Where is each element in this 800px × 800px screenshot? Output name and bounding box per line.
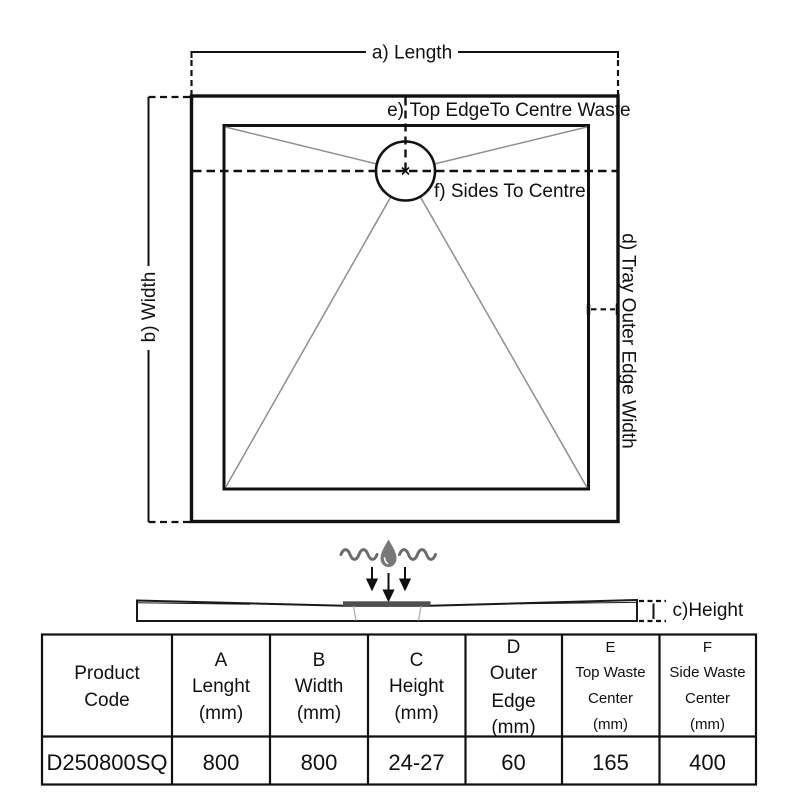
svg-text:Center: Center xyxy=(685,690,730,707)
svg-text:(mm): (mm) xyxy=(297,703,341,724)
svg-text:f) Sides To Centre: f) Sides To Centre xyxy=(434,181,586,202)
svg-text:B: B xyxy=(313,650,326,671)
svg-text:Outer: Outer xyxy=(490,663,538,684)
svg-text:c)Height: c)Height xyxy=(673,600,744,621)
svg-text:D: D xyxy=(507,637,521,658)
svg-text:b) Width: b) Width xyxy=(139,272,160,343)
svg-text:(mm): (mm) xyxy=(690,716,725,733)
svg-text:Edge: Edge xyxy=(491,691,535,712)
svg-text:Code: Code xyxy=(84,690,129,711)
svg-text:24-27: 24-27 xyxy=(388,750,444,775)
svg-text:Top EdgeTo Centre Waste: Top EdgeTo Centre Waste xyxy=(410,100,631,121)
svg-text:Height: Height xyxy=(389,676,445,697)
svg-text:(mm): (mm) xyxy=(199,703,243,724)
svg-text:400: 400 xyxy=(689,750,726,775)
svg-text:800: 800 xyxy=(301,750,338,775)
svg-text:Product: Product xyxy=(74,663,140,684)
svg-text:(mm): (mm) xyxy=(394,703,438,724)
svg-text:A: A xyxy=(215,650,228,671)
svg-text:E: E xyxy=(605,639,615,656)
svg-text:(mm): (mm) xyxy=(491,717,535,738)
svg-text:Center: Center xyxy=(588,690,633,707)
svg-text:Side Waste: Side Waste xyxy=(669,664,745,681)
svg-text:Lenght: Lenght xyxy=(192,676,251,697)
svg-text:d) Tray Outer Edge Width: d) Tray Outer Edge Width xyxy=(618,233,639,448)
svg-text:Top Waste: Top Waste xyxy=(575,664,645,681)
svg-text:800: 800 xyxy=(203,750,240,775)
svg-text:165: 165 xyxy=(592,750,629,775)
svg-text:60: 60 xyxy=(501,750,525,775)
svg-text:(mm): (mm) xyxy=(593,716,628,733)
svg-text:D250800SQ: D250800SQ xyxy=(46,750,167,775)
svg-text:e): e) xyxy=(387,100,404,121)
svg-text:F: F xyxy=(703,639,712,656)
svg-text:C: C xyxy=(410,650,424,671)
svg-text:a) Length: a) Length xyxy=(372,43,452,64)
svg-text:Width: Width xyxy=(295,676,344,697)
